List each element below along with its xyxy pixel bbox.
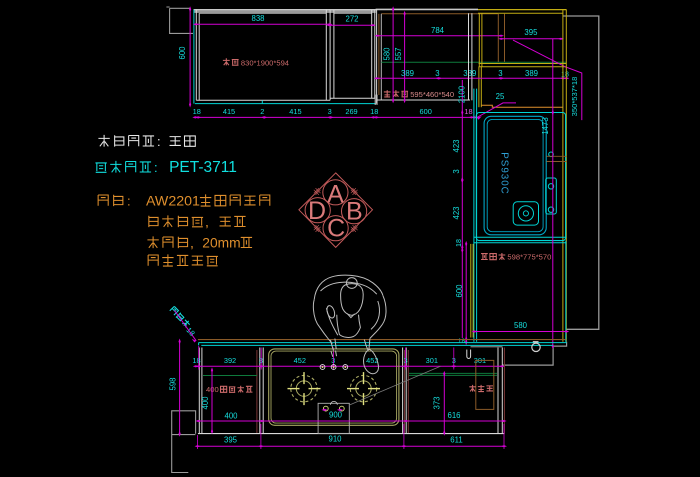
svg-text:600: 600	[178, 46, 187, 60]
svg-text:D: D	[308, 197, 326, 225]
svg-text:3: 3	[452, 169, 461, 173]
svg-text:18: 18	[192, 356, 200, 365]
svg-text:3: 3	[435, 69, 439, 78]
svg-text:2100: 2100	[457, 85, 466, 103]
svg-text:389: 389	[525, 69, 538, 78]
svg-text:395: 395	[524, 28, 538, 37]
svg-text:423: 423	[452, 139, 461, 152]
svg-text:18: 18	[464, 107, 472, 116]
svg-text:3: 3	[328, 107, 332, 116]
svg-text:423: 423	[452, 206, 461, 219]
svg-text:611: 611	[450, 436, 462, 445]
svg-text:595*460*540: 595*460*540	[410, 90, 454, 99]
svg-text:600: 600	[455, 284, 464, 298]
svg-text:18: 18	[193, 107, 201, 116]
svg-text:301: 301	[426, 356, 438, 365]
svg-text:400: 400	[224, 411, 238, 420]
svg-text:,: ,	[190, 235, 194, 251]
svg-text:784: 784	[431, 26, 445, 35]
svg-text:C: C	[327, 214, 345, 242]
svg-text:AW2201: AW2201	[146, 194, 200, 210]
svg-text:452: 452	[366, 356, 378, 365]
svg-text:389: 389	[401, 69, 414, 78]
svg-text:598*775*570: 598*775*570	[507, 253, 551, 262]
svg-text:557: 557	[394, 47, 403, 60]
svg-text:415: 415	[289, 107, 301, 116]
svg-text:392: 392	[224, 356, 236, 365]
svg-text:PET-3711: PET-3711	[169, 159, 237, 176]
svg-text:900: 900	[329, 411, 343, 420]
svg-text:272: 272	[345, 15, 358, 24]
svg-text:580: 580	[514, 321, 528, 330]
svg-text:18: 18	[561, 72, 569, 79]
svg-text::: :	[154, 160, 158, 175]
svg-text:20mm: 20mm	[202, 236, 240, 251]
svg-text:580: 580	[382, 47, 391, 61]
svg-text:910: 910	[328, 435, 342, 444]
svg-text:350*537*18: 350*537*18	[570, 77, 579, 117]
svg-text:,: ,	[205, 214, 209, 230]
svg-text:395: 395	[224, 436, 238, 445]
svg-text::: :	[157, 134, 161, 149]
svg-text:25: 25	[496, 92, 505, 101]
svg-text:598: 598	[168, 377, 177, 390]
svg-text:616: 616	[447, 411, 460, 420]
svg-text:838: 838	[251, 14, 264, 23]
svg-text::: :	[127, 194, 131, 209]
svg-text:269: 269	[345, 107, 357, 116]
svg-text:2: 2	[260, 107, 264, 116]
svg-text:PS930C: PS930C	[499, 152, 510, 195]
svg-text:830*1900*594: 830*1900*594	[241, 58, 289, 67]
svg-text:1473: 1473	[541, 117, 550, 134]
svg-text:3: 3	[498, 69, 502, 78]
svg-text:18: 18	[370, 107, 378, 116]
svg-text:B: B	[346, 197, 363, 225]
svg-text:452: 452	[294, 356, 306, 365]
svg-text:373: 373	[432, 396, 441, 409]
svg-text:600: 600	[420, 107, 432, 116]
svg-text:415: 415	[223, 107, 235, 116]
svg-text:400: 400	[201, 396, 210, 410]
svg-text:A: A	[327, 181, 344, 209]
svg-text:389: 389	[463, 69, 476, 78]
svg-text:18: 18	[454, 239, 463, 247]
